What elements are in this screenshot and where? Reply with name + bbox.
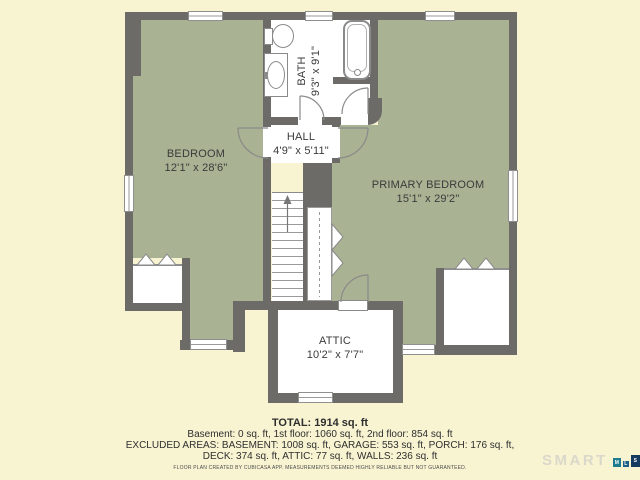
room-name: PRIMARY BEDROOM: [372, 178, 485, 192]
wall-attic-left: [268, 301, 278, 403]
wall-attic-right: [393, 310, 403, 403]
wall-hall-right-bottom: [332, 158, 340, 163]
attic-door-sill: [338, 300, 368, 311]
floorplan-canvas: BEDROOM 12'1" x 28'6" BATH 9'3" x 9'1" H…: [0, 0, 640, 480]
wall-stair-block: [303, 163, 332, 207]
smartmls-logo: SMART M L S: [542, 452, 640, 469]
window: [124, 175, 134, 212]
bedroom-corridor-area: [188, 302, 233, 340]
logo-tile-m: M: [613, 458, 621, 467]
primary-bedroom-label: PRIMARY BEDROOM 15'1" x 29'2": [372, 178, 485, 206]
excluded-areas-1: EXCLUDED AREAS: BASEMENT: 1008 sq. ft, G…: [0, 440, 640, 451]
window: [188, 11, 223, 21]
logo-text: SMART: [542, 452, 608, 469]
window: [190, 339, 227, 350]
logo-tiles: M L S: [611, 455, 640, 467]
wall-closet-left-bottom: [125, 303, 190, 311]
closet-right: [444, 270, 509, 345]
room-dims: 4'9" x 5'11": [273, 144, 329, 158]
room-dims: 9'3" x 9'1": [309, 46, 323, 96]
bedroom-area-lower: [190, 258, 266, 302]
bathtub-inner: [347, 24, 367, 72]
bath-label: BATH 9'3" x 9'1": [295, 46, 323, 96]
closet-left-top-line: [133, 264, 182, 266]
wall-bath-bottom-1: [263, 117, 298, 125]
hall-label: HALL 4'9" x 5'11": [273, 130, 329, 158]
primary-bedroom-area-upper: [378, 20, 509, 125]
window: [305, 11, 333, 21]
closet-right-top-line: [444, 268, 509, 270]
stair-flight-down: [307, 207, 332, 301]
floor-areas: Basement: 0 sq. ft, 1st floor: 1060 sq. …: [0, 429, 640, 440]
bedroom-area: [133, 20, 266, 258]
wall-bath-right: [370, 12, 378, 100]
primary-bedroom-area-lower-right: [403, 268, 440, 345]
hall-door-gap-left: [263, 127, 271, 157]
toilet-bowl: [272, 24, 294, 48]
room-dims: 10'2" x 7'7": [307, 348, 364, 362]
bathtub-faucet: [354, 69, 361, 76]
window: [402, 344, 435, 355]
primary-bedroom-area-lower: [332, 268, 403, 301]
wall-hall-right-top: [332, 117, 340, 127]
bedroom-label: BEDROOM 12'1" x 28'6": [165, 147, 228, 175]
wall-stairwell-left: [263, 157, 271, 301]
room-name: BEDROOM: [165, 147, 228, 161]
attic-label: ATTIC 10'2" x 7'7": [307, 334, 364, 362]
wall-mid-horizontal: [233, 301, 403, 310]
sink-basin: [267, 61, 285, 89]
room-name: HALL: [273, 130, 329, 144]
room-dims: 12'1" x 28'6": [165, 161, 228, 175]
total-area: TOTAL: 1914 sq. ft: [0, 417, 640, 429]
room-dims: 15'1" x 29'2": [372, 192, 485, 206]
logo-tile-l: L: [623, 461, 629, 467]
wall-attic-bottom: [268, 393, 403, 403]
window: [425, 11, 455, 21]
hall-door-gap-right: [332, 127, 340, 158]
stair-flight-up: [272, 192, 303, 301]
room-name: BATH: [295, 46, 309, 96]
wall-left-jog: [125, 12, 141, 76]
window: [508, 170, 518, 222]
window: [298, 392, 333, 403]
wall-stair-divider: [303, 207, 307, 301]
logo-tile-s: S: [631, 455, 640, 467]
room-name: ATTIC: [307, 334, 364, 348]
wall-closet-right-left: [436, 268, 444, 345]
closet-left: [133, 266, 182, 303]
sink-tap: [264, 72, 268, 79]
